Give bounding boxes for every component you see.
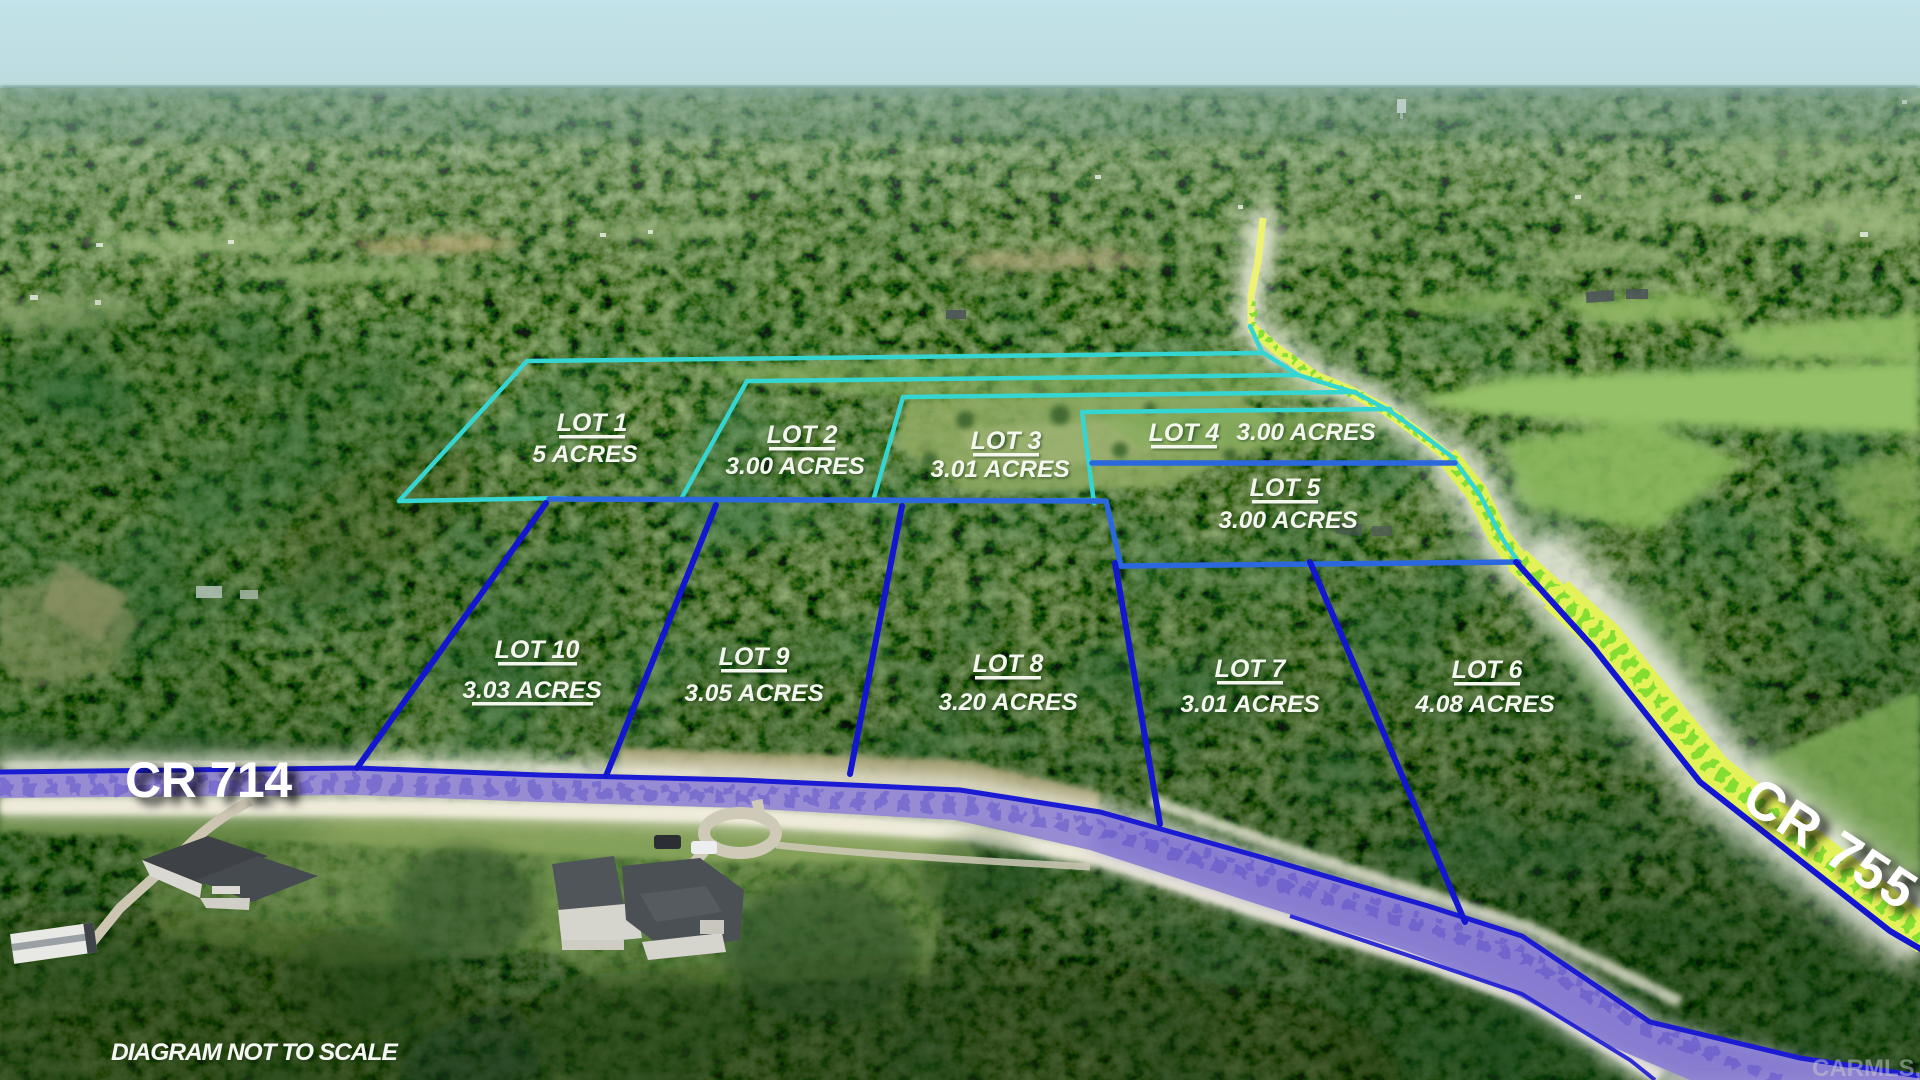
svg-text:3.00 ACRES: 3.00 ACRES [1218, 507, 1358, 534]
svg-text:LOT 10: LOT 10 [495, 636, 580, 664]
svg-text:LOT 6: LOT 6 [1452, 656, 1524, 684]
svg-text:LOT 8: LOT 8 [973, 650, 1044, 678]
svg-text:CR 714: CR 714 [125, 752, 292, 808]
svg-text:5 ACRES: 5 ACRES [532, 441, 638, 468]
svg-text:3.00 ACRES: 3.00 ACRES [725, 453, 865, 480]
svg-text:LOT 7: LOT 7 [1215, 655, 1287, 683]
svg-text:3.01 ACRES: 3.01 ACRES [930, 456, 1070, 483]
svg-text:LOT 5: LOT 5 [1250, 474, 1322, 502]
svg-text:3.00 ACRES: 3.00 ACRES [1236, 419, 1376, 446]
svg-text:DIAGRAM NOT TO SCALE: DIAGRAM NOT TO SCALE [111, 1039, 398, 1066]
svg-text:LOT 1: LOT 1 [557, 409, 628, 437]
svg-text:CARMLS, INC: CARMLS, INC [1812, 1055, 1920, 1080]
svg-text:3.20 ACRES: 3.20 ACRES [938, 689, 1078, 716]
svg-text:LOT 4: LOT 4 [1149, 419, 1220, 447]
svg-text:3.01 ACRES: 3.01 ACRES [1180, 691, 1320, 718]
svg-text:3.03 ACRES: 3.03 ACRES [462, 677, 602, 704]
svg-text:LOT 9: LOT 9 [719, 643, 790, 671]
svg-text:4.08 ACRES: 4.08 ACRES [1414, 691, 1555, 718]
svg-text:LOT 2: LOT 2 [767, 421, 838, 449]
svg-text:3.05 ACRES: 3.05 ACRES [684, 680, 824, 707]
svg-text:LOT 3: LOT 3 [971, 427, 1042, 455]
